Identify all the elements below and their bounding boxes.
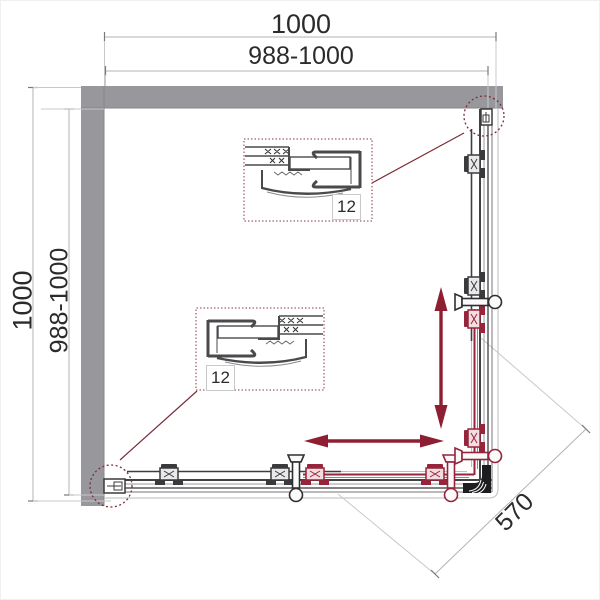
dimension-lines — [28, 32, 590, 578]
wall-profile-top-right — [481, 109, 492, 125]
left-wall — [81, 86, 104, 506]
roller-bottom-2 — [266, 464, 294, 485]
dim-height-inner: 988-1000 — [48, 231, 73, 371]
sliding-door-right — [475, 309, 478, 475]
detail-leader-bottom — [120, 391, 197, 460]
dim-height-outer: 1000 — [10, 241, 37, 361]
detail-label-top: 12 — [332, 194, 361, 220]
roller-right-2 — [464, 272, 485, 300]
roller-right-1 — [464, 150, 485, 178]
shower-enclosure-drawing: 1000 988-1000 1000 988-1000 570 12 12 — [0, 0, 600, 600]
dim-width-outer: 1000 — [241, 11, 361, 38]
slide-arrow-horizontal — [304, 435, 444, 448]
handle-right-red — [455, 448, 502, 464]
roller-bottom-1 — [155, 464, 183, 485]
dim-width-inner: 988-1000 — [231, 44, 371, 69]
handle-bottom-dark — [288, 455, 304, 502]
detail-label-bottom: 12 — [206, 365, 235, 391]
wall-profile-bottom-left — [104, 479, 125, 493]
top-wall — [81, 86, 503, 108]
detail-leader-top — [372, 133, 464, 183]
handle-right-dark — [455, 294, 502, 310]
slide-arrow-vertical — [435, 287, 448, 429]
